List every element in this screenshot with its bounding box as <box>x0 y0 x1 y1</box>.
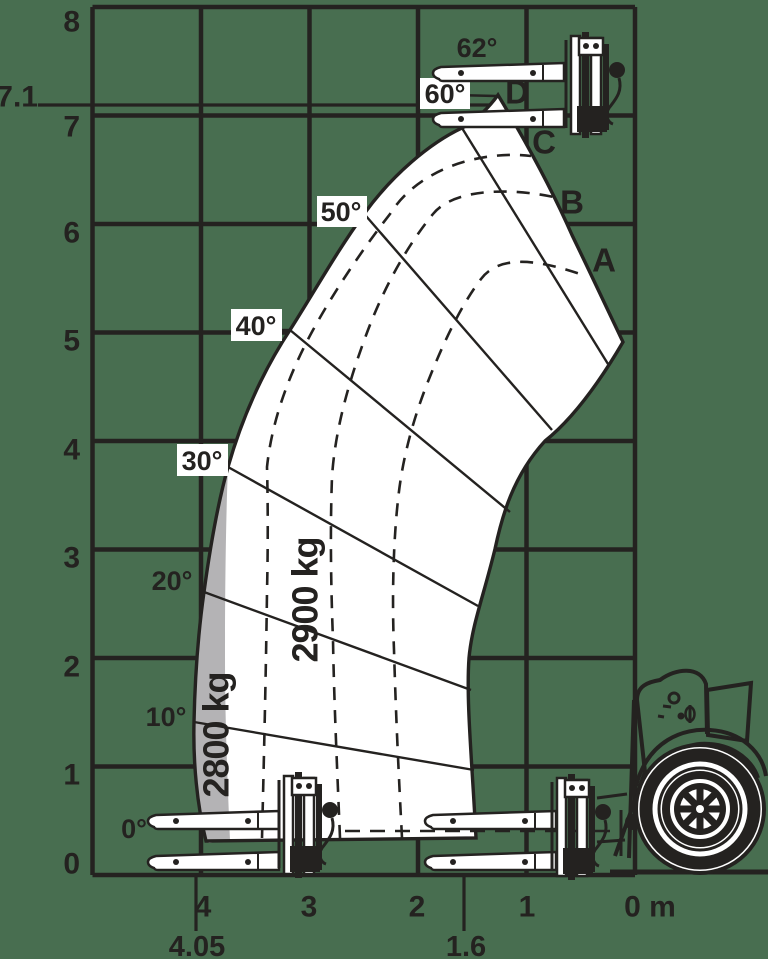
y-label-6: 6 <box>63 217 80 250</box>
y-label-7-1: 7.1 <box>0 81 38 114</box>
mark-B: B <box>560 184 584 221</box>
x-label-0m: 0 m <box>624 891 676 924</box>
telehandler-load-chart: 8 7.1 7 6 5 4 3 2 1 0 4 3 2 1 0 m 4.05 1… <box>0 0 768 959</box>
angle-label-30: 30° <box>182 446 223 476</box>
x-label-1: 1 <box>519 891 536 924</box>
cab-detail-4 <box>658 716 664 717</box>
angle-label-60: 60° <box>425 79 466 109</box>
y-label-2: 2 <box>63 651 80 684</box>
x-label-1-6: 1.6 <box>446 931 486 959</box>
mark-A: A <box>592 242 616 279</box>
angle-label-50: 50° <box>321 197 362 227</box>
zone-label-2800: 2800 kg <box>196 672 237 797</box>
angle-label-40: 40° <box>236 311 277 341</box>
y-label-0: 0 <box>63 848 80 881</box>
angle-label-10: 10° <box>146 702 187 732</box>
y-label-7: 7 <box>63 111 80 144</box>
cab-detail-3 <box>663 706 671 707</box>
light-icon <box>678 713 685 720</box>
mark-C: C <box>532 124 556 161</box>
x-label-4: 4 <box>195 891 212 924</box>
wheel <box>636 745 764 873</box>
zone-label-2900: 2900 kg <box>285 537 326 662</box>
y-label-4: 4 <box>63 434 80 467</box>
angle-label-0: 0° <box>121 814 147 844</box>
load-chart-page: 8 7.1 7 6 5 4 3 2 1 0 4 3 2 1 0 m 4.05 1… <box>0 0 768 959</box>
x-label-2: 2 <box>409 891 426 924</box>
angle-label-20: 20° <box>152 566 193 596</box>
link-lower <box>597 840 625 842</box>
y-label-1: 1 <box>63 759 80 792</box>
y-label-3: 3 <box>63 542 80 575</box>
angle-label-62: 62° <box>457 33 498 63</box>
x-label-4-05: 4.05 <box>169 931 225 959</box>
y-label-8: 8 <box>63 6 80 39</box>
y-label-5: 5 <box>63 325 80 358</box>
x-label-3: 3 <box>301 891 318 924</box>
